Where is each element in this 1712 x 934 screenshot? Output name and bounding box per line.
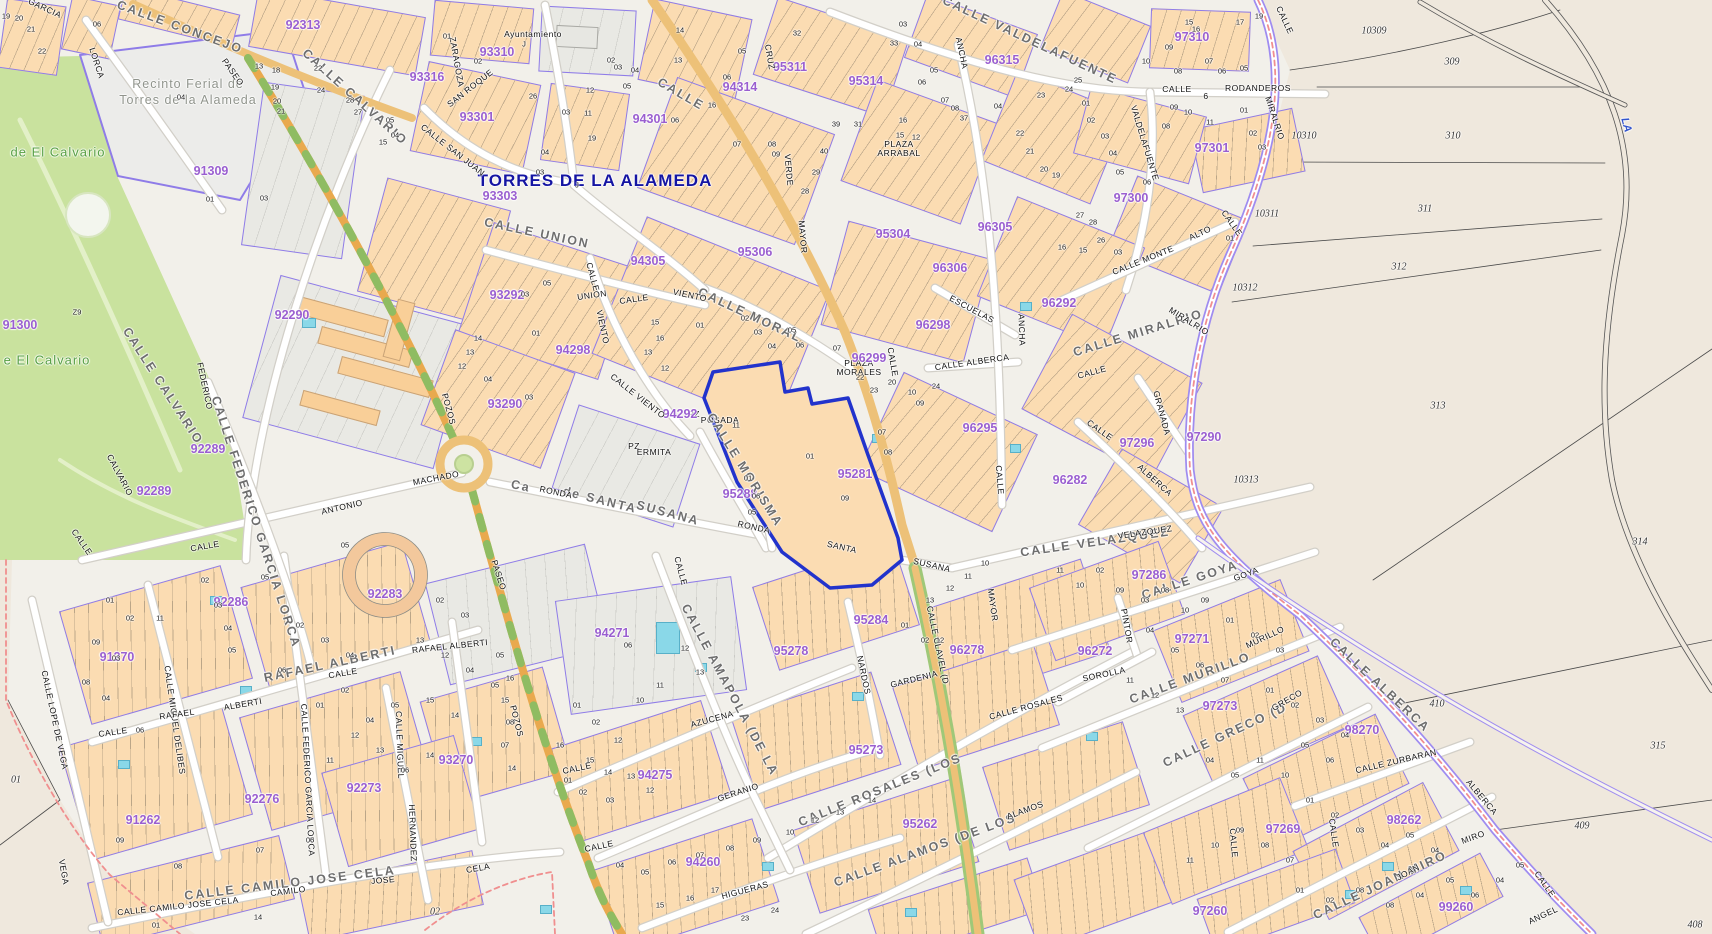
parcel-number-label: 05 xyxy=(1240,64,1248,73)
parcel-number-label: 04 xyxy=(1416,891,1424,900)
parcel-number-label: 03 xyxy=(614,63,622,72)
street-name-label: CALLE xyxy=(584,838,615,854)
parcel-number-label: 14 xyxy=(254,913,262,922)
block-number-label: 97300 xyxy=(1114,191,1149,205)
parcel-number-label: 03 xyxy=(1258,143,1266,152)
parcel-number-label: 12 xyxy=(458,362,466,371)
parcel-number-label: 12 xyxy=(912,133,920,142)
parcel-number-label: 09 xyxy=(916,399,924,408)
parcel-number-label: 02 xyxy=(126,614,134,623)
block-number-label: 94314 xyxy=(723,80,758,94)
parcel-number-label: 03 xyxy=(606,796,614,805)
block-number-label: 95281 xyxy=(838,467,873,481)
park-path xyxy=(60,460,235,540)
parcel-number-label: 09 xyxy=(1201,596,1209,605)
parcel-number-label: 03 xyxy=(525,393,533,402)
parcel-number-label: 06 xyxy=(1196,661,1204,670)
parcel-number-label: 28 xyxy=(346,96,354,105)
parcel-number-label: 07 xyxy=(878,428,886,437)
parcel-number-label: 05 xyxy=(496,651,504,660)
parcel-number-label: 05 xyxy=(543,279,551,288)
parcel-number-label: 08 xyxy=(1261,841,1269,850)
pool xyxy=(905,908,917,917)
parcel-number-label: 01 xyxy=(1240,106,1248,115)
parcel-number-label: 12 xyxy=(811,816,819,825)
parcel-number-label: 06 xyxy=(306,836,314,845)
parcel-number-label: 06 xyxy=(136,726,144,735)
parcel-number-label: 05 xyxy=(1446,876,1454,885)
block-number-label: 95278 xyxy=(774,644,809,658)
parcel-number-label: 06 xyxy=(752,492,760,501)
parcel-number-label: 13 xyxy=(416,636,424,645)
block-number-label: 95304 xyxy=(876,227,911,241)
parcel-number-label: 01 xyxy=(1226,234,1234,243)
parcel-number-label: 24 xyxy=(1065,85,1073,94)
parcel-number-label: 08 xyxy=(1162,122,1170,131)
parcel-number-label: 23 xyxy=(741,914,749,923)
block-number-label: 95273 xyxy=(849,743,884,757)
area-name-label: e El Calvario xyxy=(4,353,91,368)
block-number-label: 97260 xyxy=(1193,904,1228,918)
street-name-label: ALBERTI xyxy=(223,696,263,713)
rural-parcel-number-label: 310 xyxy=(1446,131,1461,142)
parcel-number-label: 03 xyxy=(536,168,544,177)
parcel-number-label: 05 xyxy=(228,646,236,655)
pool xyxy=(240,686,252,695)
parcel-number-label: 03 xyxy=(521,290,529,299)
parcel-number-label: 11 xyxy=(964,572,972,581)
parcel-number-label: 16 xyxy=(1192,25,1200,34)
parcel-number-label: 05 xyxy=(386,116,394,125)
street-name-label: CALVARIO xyxy=(105,452,135,497)
parcel-number-label: 07 xyxy=(696,851,704,860)
parcel-number-label: 04 xyxy=(1341,731,1349,740)
parcel-number-label: 07 xyxy=(256,846,264,855)
parcel-number-label: 02 xyxy=(341,686,349,695)
parcel-number-label: 12 xyxy=(681,644,689,653)
parcel-number-label: 12 xyxy=(661,364,669,373)
parcel-number-label: 22 xyxy=(38,47,46,56)
block-number-label: 93316 xyxy=(410,70,445,84)
street-name-label: CALLE LOPE DE VEGA xyxy=(40,670,71,771)
block-number-label: 94301 xyxy=(633,112,668,126)
rural-parcel-line xyxy=(1373,349,1712,580)
parcel-number-label: 04 xyxy=(616,861,624,870)
parcel-number-label: 13 xyxy=(376,746,384,755)
rural-parcel-number-label: 313 xyxy=(1431,401,1446,412)
block-number-label: 96315 xyxy=(985,53,1020,67)
parcel-number-label: 04 xyxy=(1109,149,1117,158)
parcel-number-label: 05 xyxy=(261,573,269,582)
parcel-number-label: 11 xyxy=(1186,856,1194,865)
parcel-number-label: 37 xyxy=(960,114,968,123)
parcel-number-label: 14 xyxy=(508,764,516,773)
parcel-number-label: 03 xyxy=(1276,646,1284,655)
parcel-number-label: 08 xyxy=(884,448,892,457)
parcel-number-label: 11 xyxy=(326,756,334,765)
parcel-number-label: 08 xyxy=(1174,67,1182,76)
pool xyxy=(762,862,774,871)
block-number-label: 92276 xyxy=(245,792,280,806)
block-number-label: 96295 xyxy=(963,421,998,435)
parcel-number-label: 21 xyxy=(277,107,285,116)
parcel-number-label: 08 xyxy=(726,844,734,853)
parcel-number-label: 11 xyxy=(584,109,592,118)
area-name-label: Torres de la Alameda xyxy=(119,93,256,107)
parcel-number-label: 09 xyxy=(841,494,849,503)
road-name-label: LA xyxy=(1618,116,1633,133)
parcel-number-label: 08 xyxy=(1161,586,1169,595)
parcel-number-label: 07 xyxy=(1205,57,1213,66)
parcel-number-label: 04 xyxy=(346,651,354,660)
parcel-number-label: 03 xyxy=(461,611,469,620)
block-number-label: 95311 xyxy=(773,60,807,74)
parcel-number-label: 05 xyxy=(1171,646,1179,655)
parcel-number-label: 10 xyxy=(981,559,989,568)
parcel-number-label: 12 xyxy=(936,636,944,645)
block-number-label: 93292 xyxy=(490,288,525,302)
parcel-number-label: 05 xyxy=(748,508,756,517)
parcel-number-label: 18 xyxy=(272,66,280,75)
rural-parcel-line xyxy=(1395,640,1712,705)
parcel-number-label: 02 xyxy=(1291,701,1299,710)
parcel-number-label: 02 xyxy=(1087,116,1095,125)
parcel-number-label: 27 xyxy=(354,108,362,117)
rural-track xyxy=(1545,0,1712,690)
parcel-number-label: 17 xyxy=(1236,18,1244,27)
parcel-number-label: 04 xyxy=(631,66,639,75)
parcel-number-label: 08 xyxy=(768,140,776,149)
parcel-number-label: 16 xyxy=(506,674,514,683)
parcel-number-label: 33 xyxy=(890,39,898,48)
parcel-number-label: 07 xyxy=(1221,676,1229,685)
area-name-label: de El Calvario xyxy=(11,145,106,160)
street-name-label: ANTONIO xyxy=(320,497,363,516)
rural-track xyxy=(1545,0,1712,690)
town-name-label: TORRES DE LA ALAMEDA xyxy=(478,171,713,191)
street-name-label: RODANDEROS xyxy=(1225,83,1291,93)
rural-track xyxy=(1420,2,1625,105)
parcel-number-label: 05 xyxy=(788,326,796,335)
pool xyxy=(118,760,130,769)
parcel-number-label: 02 xyxy=(1331,811,1339,820)
parcel-number-label: 06 xyxy=(93,20,101,29)
parcel-number-label: 05 xyxy=(1301,741,1309,750)
street-name-label: VEGA xyxy=(57,859,71,886)
parcel-number-label: 10 xyxy=(636,696,644,705)
block-number-label: 92283 xyxy=(368,587,403,601)
parcel-number-label: 05 xyxy=(623,82,631,91)
parcel-number-label: 08 xyxy=(82,678,90,687)
parcel-number-label: 03 xyxy=(1356,826,1364,835)
parcel-number-label: 05 xyxy=(930,66,938,75)
park-path xyxy=(20,120,180,470)
parcel-number-label: 13 xyxy=(674,56,682,65)
parcel-number-label: 09 xyxy=(1165,43,1173,52)
parcel-number-label: 12 xyxy=(646,786,654,795)
parcel-number-label: 12 xyxy=(586,86,594,95)
parcel-number-label: 06 xyxy=(624,641,632,650)
parcel-number-label: 06 xyxy=(668,858,676,867)
city-block xyxy=(540,83,630,171)
parcel-number-label: 28 xyxy=(801,187,809,196)
parcel-number-label: 17 xyxy=(711,886,719,895)
block-number-label: 95284 xyxy=(854,613,889,627)
parcel-number-label: 15 xyxy=(501,696,509,705)
parcel-number-label: Z9 xyxy=(73,308,82,317)
rural-parcel-number-label: 10310 xyxy=(1292,131,1317,142)
parcel-number-label: 06 xyxy=(1218,67,1226,76)
rural-parcel-line xyxy=(1253,219,1602,246)
street-name-label: CALLE xyxy=(1532,869,1557,899)
parcel-number-label: 08 xyxy=(174,862,182,871)
parcel-number-label: 04 xyxy=(177,93,185,102)
parcel-number-label: 10 xyxy=(1211,841,1219,850)
parcel-number-label: 01 xyxy=(443,32,451,41)
parcel-number-label: 19 xyxy=(1052,171,1060,180)
parcel-number-label: 15 xyxy=(379,138,387,147)
parcel-number-label: 26 xyxy=(1097,236,1105,245)
parcel-number-label: 07 xyxy=(501,741,509,750)
parcel-number-label: 07 xyxy=(1286,856,1294,865)
parcel-number-label: 15 xyxy=(656,901,664,910)
parcel-number-label: 04 xyxy=(366,716,374,725)
parcel-number-label: 14 xyxy=(868,796,876,805)
parcel-number-label: 04 xyxy=(1496,876,1504,885)
rural-track xyxy=(1420,2,1625,105)
block-number-label: 96299 xyxy=(852,351,887,365)
block-number-label: 95306 xyxy=(738,245,773,259)
parcel-number-label: 02 xyxy=(1326,896,1334,905)
parcel-number-label: 13 xyxy=(627,772,635,781)
block-number-label: 94305 xyxy=(631,254,666,268)
parcel-number-label: 10 xyxy=(1281,771,1289,780)
parcel-number-label: 06 xyxy=(671,116,679,125)
parcel-number-label: 11 xyxy=(656,681,664,690)
block-number-label: 97273 xyxy=(1203,699,1238,713)
parcel-number-label: 22 xyxy=(314,64,322,73)
parcel-number-label: 03 xyxy=(754,328,762,337)
parcel-number-label: 10 xyxy=(1076,581,1084,590)
parcel-number-label: 04 xyxy=(768,342,776,351)
rural-parcel-line xyxy=(1495,800,1712,830)
parcel-number-label: 01 xyxy=(744,474,752,483)
parcel-number-label: 03 xyxy=(1141,596,1149,605)
street-name-label: 6 xyxy=(1203,91,1208,101)
parcel-number-label: 24 xyxy=(771,906,779,915)
parcel-number-label: 40 xyxy=(820,147,828,156)
parcel-number-label: 02 xyxy=(1251,631,1259,640)
parcel-number-label: 14 xyxy=(474,334,482,343)
parcel-number-label: 04 xyxy=(1146,626,1154,635)
parcel-number-label: 19 xyxy=(2,12,10,21)
parcel-number-label: 01 xyxy=(806,452,814,461)
parcel-number-label: 10 xyxy=(1184,108,1192,117)
area-name-label: Recinto Ferial de xyxy=(132,77,244,91)
parcel-number-label: 02 xyxy=(741,314,749,323)
parcel-number-label: 05 xyxy=(738,47,746,56)
parcel-number-label: 19 xyxy=(1255,12,1263,21)
city-block xyxy=(241,82,365,260)
street-name-label: FEDERICO xyxy=(195,362,215,411)
block-number-label: 91300 xyxy=(3,318,38,332)
parcel-number-label: 39 xyxy=(832,120,840,129)
rural-parcel-number-label: 10309 xyxy=(1362,26,1387,37)
parcel-number-label: 13 xyxy=(926,596,934,605)
parcel-number-label: 23 xyxy=(1037,91,1045,100)
parcel-number-label: 02 xyxy=(474,57,482,66)
parcel-number-label: 23 xyxy=(870,386,878,395)
block-number-label: 97271 xyxy=(1175,632,1210,646)
street-name-label: CALLE xyxy=(69,527,94,557)
parcel-number-label: 05 xyxy=(341,541,349,550)
block-number-label: 98262 xyxy=(1387,813,1422,827)
parcel-number-label: 03 xyxy=(562,108,570,117)
block-number-label: 94275 xyxy=(638,768,673,782)
rural-parcel-number-label: 10312 xyxy=(1233,283,1258,294)
parcel-number-label: 13 xyxy=(1176,706,1184,715)
street-name-label: ANGEL xyxy=(1527,904,1560,926)
block-number-label: 97286 xyxy=(1132,568,1167,582)
parcel-number-label: 09 xyxy=(1170,103,1178,112)
street-name-label: MAYOR xyxy=(797,220,810,254)
parcel-number-label: 12 xyxy=(1151,691,1159,700)
parcel-number-label: 26 xyxy=(529,92,537,101)
parcel-number-label: 11 xyxy=(1056,566,1064,575)
parcel-number-label: 19 xyxy=(588,134,596,143)
rural-parcel-number-label: 409 xyxy=(1575,821,1590,832)
rural-parcel-line xyxy=(1232,250,1601,302)
street-name-label: SOROLLA xyxy=(1082,665,1127,684)
parcel-number-label: 02 xyxy=(201,576,209,585)
rural-parcel-number-label: 10311 xyxy=(1255,209,1279,220)
parcel-number-label: 01 xyxy=(573,701,581,710)
parcel-number-label: 01 xyxy=(106,596,114,605)
parcel-number-label: 07 xyxy=(833,344,841,353)
street-name-label: CALLE xyxy=(1274,5,1296,36)
parcel-number-label: 15 xyxy=(651,318,659,327)
street-name-label: JOSE xyxy=(371,874,396,886)
parcel-number-label: 02 xyxy=(1096,566,1104,575)
block-number-label: 92313 xyxy=(286,18,321,32)
parcel-number-label: 02 xyxy=(579,788,587,797)
parcel-number-label: 16 xyxy=(899,116,907,125)
parcel-number-label: 11 xyxy=(1126,676,1134,685)
city-block xyxy=(59,701,253,861)
parcel-number-label: 27 xyxy=(1076,211,1084,220)
rural-parcel-line xyxy=(1290,10,1560,70)
parcel-number-label: 10 xyxy=(1142,57,1150,66)
parcel-number-label: 16 xyxy=(656,334,664,343)
parcel-number-label: 13 xyxy=(644,348,652,357)
parcel-number-label: 20 xyxy=(1040,165,1048,174)
pool xyxy=(540,905,552,914)
rural-parcel-number-label: 315 xyxy=(1651,741,1666,752)
parcel-number-label: 03 xyxy=(1316,716,1324,725)
parcel-number-label: 03 xyxy=(214,601,222,610)
parcel-number-label: 04 xyxy=(484,375,492,384)
parcel-number-label: 14 xyxy=(604,768,612,777)
block-number-label: 96292 xyxy=(1042,296,1077,310)
parcel-number-label: 21 xyxy=(1026,147,1034,156)
parcel-number-label: J xyxy=(575,181,579,190)
block-number-label: 91309 xyxy=(194,164,229,178)
pool xyxy=(470,737,482,746)
parcel-number-label: 03 xyxy=(1101,132,1109,141)
block-number-label: 97296 xyxy=(1120,436,1155,450)
street-name-label: ARRABAL xyxy=(877,148,920,158)
parcel-number-label: 10 xyxy=(786,828,794,837)
parcel-number-label: 31 xyxy=(854,120,862,129)
block-number-label: 93303 xyxy=(483,189,518,203)
rural-parcel-line xyxy=(1283,162,1605,163)
parcel-number-label: 20 xyxy=(888,378,896,387)
block-number-label: 95314 xyxy=(849,74,884,88)
parcel-number-label: 04 xyxy=(994,102,1002,111)
parcel-number-label: 05 xyxy=(641,868,649,877)
block-number-label: 93270 xyxy=(439,753,474,767)
block-number-label: 96272 xyxy=(1078,644,1113,658)
parcel-number-label: 14 xyxy=(426,751,434,760)
parcel-number-label: 01 xyxy=(1082,99,1090,108)
parcel-number-label: 05 xyxy=(1116,168,1124,177)
parcel-number-label: 03 xyxy=(321,636,329,645)
rural-parcel-number-label: 10313 xyxy=(1234,475,1259,486)
city-block xyxy=(821,221,992,364)
parcel-number-label: 04 xyxy=(1206,756,1214,765)
parcel-number-label: 04 xyxy=(102,694,110,703)
street-name-label: Ayuntamiento xyxy=(504,29,562,39)
parcel-number-label: 06 xyxy=(1143,178,1151,187)
street-name-label: SUSANA xyxy=(912,556,951,574)
parcel-number-label: 02 xyxy=(436,596,444,605)
street-name-label: ANCHA xyxy=(1016,314,1027,347)
parcel-number-label: 06 xyxy=(1326,756,1334,765)
block-number-label: 96278 xyxy=(950,643,985,657)
parcel-number-label: 32 xyxy=(793,29,801,38)
parcel-number-label: 04 xyxy=(224,624,232,633)
parcel-number-label: 04 xyxy=(1431,846,1439,855)
block-number-label: 95262 xyxy=(903,817,938,831)
block-number-label: 91262 xyxy=(126,813,161,827)
parcel-number-label: 06 xyxy=(796,341,804,350)
parcel-number-label: 06 xyxy=(918,78,926,87)
parcel-number-label: 02 xyxy=(296,621,304,630)
block-number-label: 96305 xyxy=(978,220,1013,234)
block-number-label: 93310 xyxy=(480,45,515,59)
parcel-number-label: 01 xyxy=(564,776,572,785)
parcel-number-label: 28 xyxy=(1089,218,1097,227)
parcel-number-label: 07 xyxy=(941,96,949,105)
parcel-number-label: 20 xyxy=(15,14,23,23)
street-name-label: MIRO xyxy=(1460,828,1486,846)
block-number-label: 93290 xyxy=(488,397,523,411)
street-name-label: CALLE xyxy=(672,555,689,586)
block-number-label: 96282 xyxy=(1053,473,1088,487)
parcel-number-label: 11 xyxy=(732,421,740,430)
parcel-number-label: 08 xyxy=(506,718,514,727)
cadastral-map-canvas[interactable]: TORRES DE LA ALAMEDARecinto Ferial deTor… xyxy=(0,0,1712,934)
street-name-label: CALLE xyxy=(1162,84,1191,94)
parcel-number-label: 13 xyxy=(255,62,263,71)
parcel-number-label: 07 xyxy=(733,140,741,149)
parcel-number-label: 05 xyxy=(391,701,399,710)
parcel-number-label: 22 xyxy=(856,373,864,382)
parcel-number-label: 02 xyxy=(592,718,600,727)
parcel-number-label: 03 xyxy=(260,194,268,203)
parcel-number-label: 11 xyxy=(1256,756,1264,765)
parcel-number-label: 03 xyxy=(899,20,907,29)
